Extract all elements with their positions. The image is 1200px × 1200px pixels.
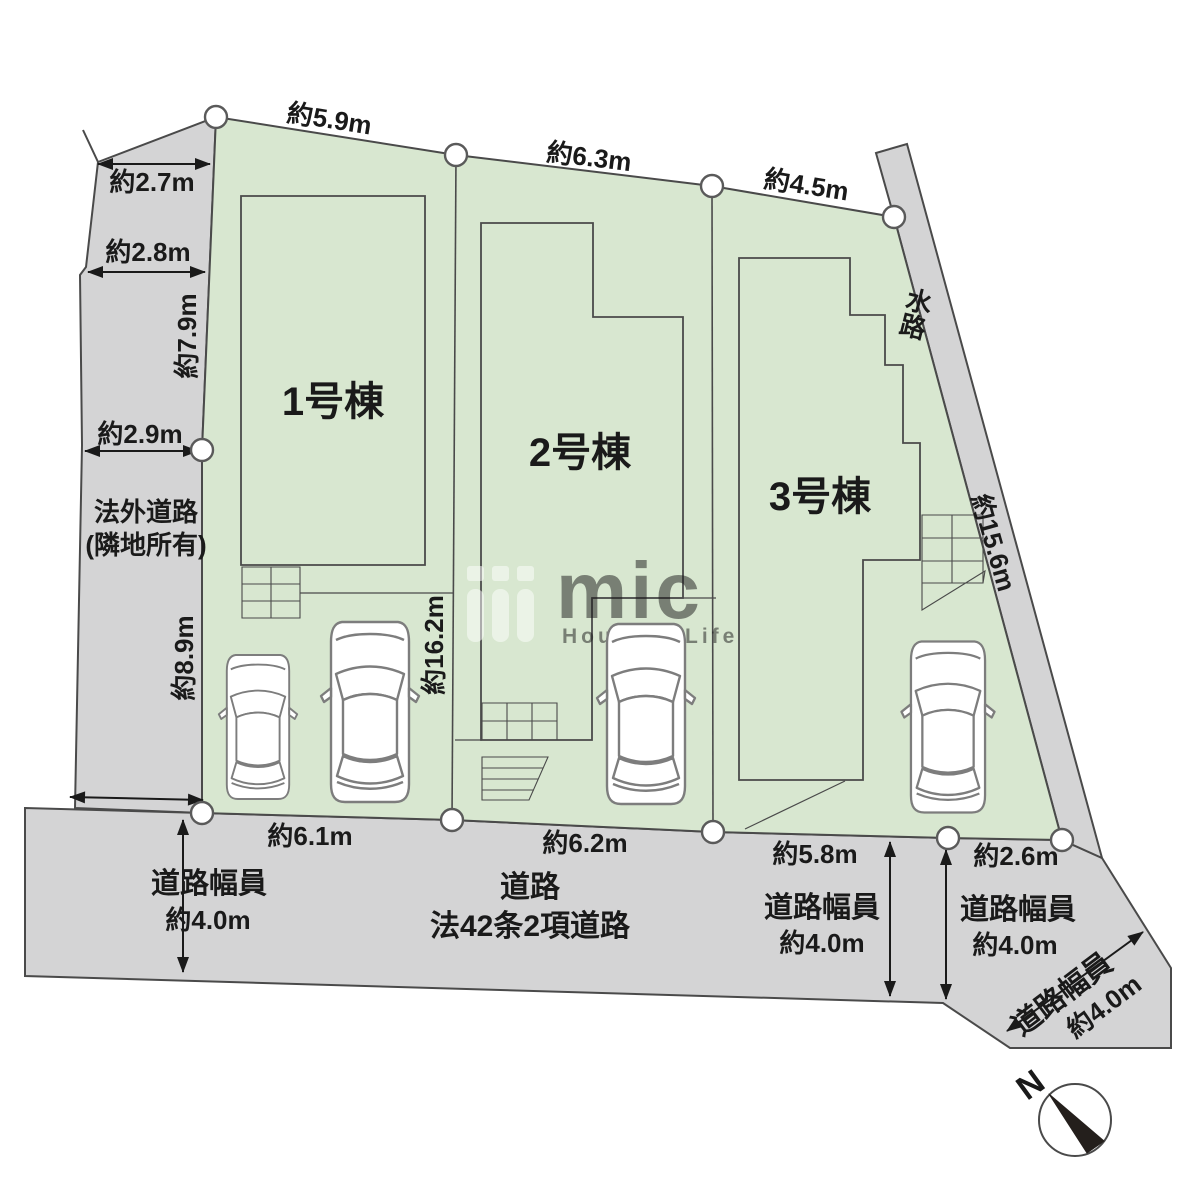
building-2-label: 2号棟: [529, 431, 632, 475]
site-plan-drawing: mic House & Life 約5.9m 約6.3m 約4.5m 約2.7m…: [0, 0, 1200, 1200]
car-lot3: [901, 642, 994, 813]
road-width-mid-value: 約4.0m: [779, 928, 864, 958]
dim-left-2-9: 約2.9m: [97, 419, 182, 449]
car-lot2: [597, 624, 695, 804]
main-road-type: 法42条2項道路: [430, 910, 631, 943]
car-lot1: [321, 622, 419, 802]
road-width-mid-label: 道路幅員: [764, 891, 880, 924]
north-compass-icon: N: [1009, 1063, 1111, 1156]
road-width-right-label: 道路幅員: [960, 893, 1076, 926]
dim-center-16-2: 約16.2m: [419, 595, 449, 695]
dim-left-8-9: 約8.9m: [169, 615, 199, 700]
site-plan-page: mic House & Life 約5.9m 約6.3m 約4.5m 約2.7m…: [0, 0, 1200, 1200]
dim-bottom-5-8: 約5.8m: [772, 839, 857, 869]
lot-boundary-2-3: [712, 186, 713, 832]
main-road-label: 道路: [500, 871, 561, 904]
building-3-label: 3号棟: [769, 475, 872, 519]
left-road-label-line1: 法外道路: [94, 497, 199, 527]
road-width-left-value: 約4.0m: [165, 905, 250, 935]
dim-bottom-6-1: 約6.1m: [267, 821, 352, 851]
left-private-road-area: [75, 117, 216, 813]
dim-bottom-2-6: 約2.6m: [973, 841, 1058, 871]
dim-left-2-7: 約2.7m: [109, 167, 194, 197]
dim-left-7-9: 約7.9m: [172, 293, 202, 378]
road-width-left-label: 道路幅員: [151, 867, 267, 900]
watermark-brand-text: mic: [556, 546, 703, 635]
building-1-label: 1号棟: [282, 380, 385, 424]
left-road-label-line2: (隣地所有): [85, 530, 206, 560]
dim-bottom-6-2: 約6.2m: [542, 828, 627, 858]
car-lot1-small: [219, 655, 297, 799]
road-width-right-value: 約4.0m: [972, 930, 1057, 960]
boundary-tick-line: [83, 130, 98, 162]
dim-left-2-8: 約2.8m: [105, 237, 190, 267]
